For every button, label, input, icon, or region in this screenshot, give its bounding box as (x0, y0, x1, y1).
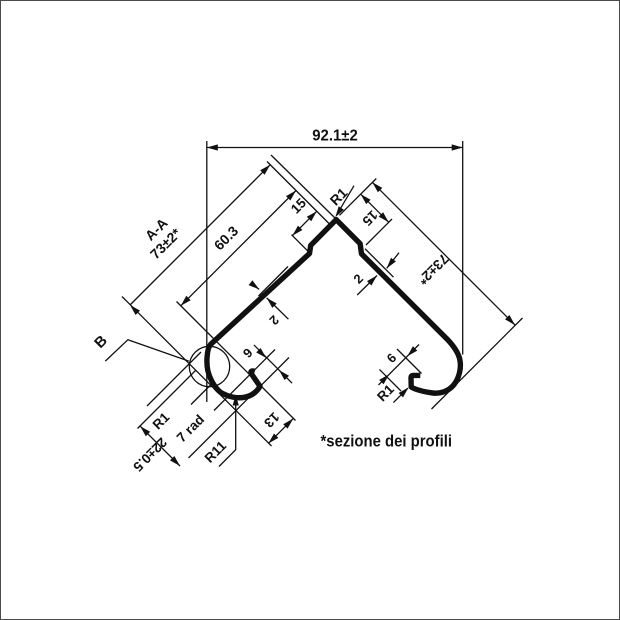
svg-text:60.3: 60.3 (210, 222, 241, 253)
svg-text:22±0.5: 22±0.5 (129, 434, 169, 474)
svg-text:R11: R11 (201, 437, 229, 465)
svg-text:6: 6 (239, 345, 255, 361)
svg-text:*sezione dei profili: *sezione dei profili (320, 432, 452, 450)
svg-text:B: B (91, 332, 111, 352)
svg-text:R1: R1 (326, 184, 350, 208)
svg-text:6: 6 (383, 350, 399, 366)
svg-text:73±2*: 73±2* (414, 250, 452, 288)
svg-text:2: 2 (266, 312, 282, 328)
svg-text:92.1±2: 92.1±2 (312, 127, 358, 144)
svg-text:13: 13 (260, 409, 282, 431)
svg-text:2: 2 (350, 270, 366, 286)
svg-text:R1: R1 (374, 381, 397, 404)
svg-text:7 rad: 7 rad (173, 411, 206, 444)
